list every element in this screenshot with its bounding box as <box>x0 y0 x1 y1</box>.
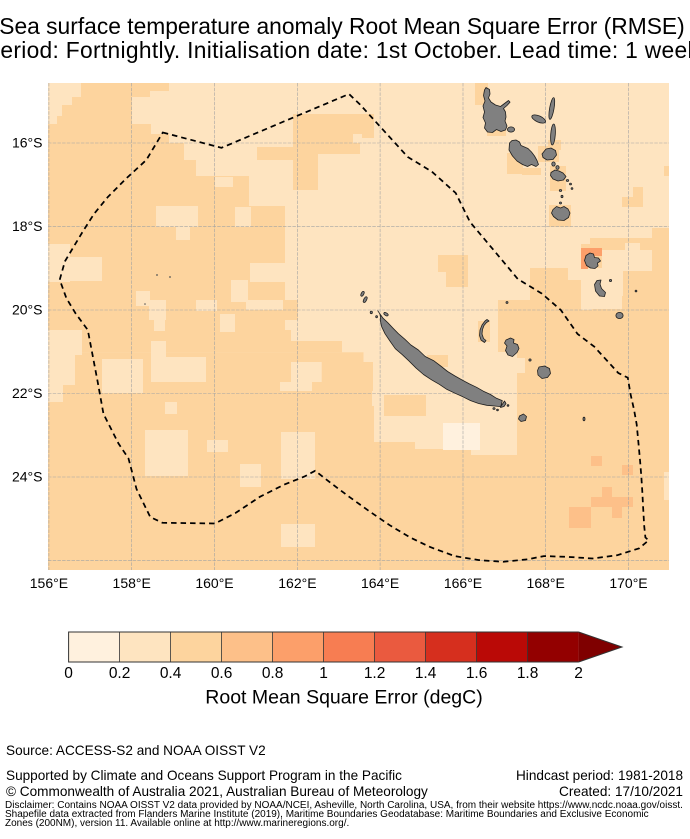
svg-text:160°E: 160°E <box>195 575 233 591</box>
svg-text:Root Mean Square Error (degC): Root Mean Square Error (degC) <box>205 687 482 709</box>
svg-text:1.8: 1.8 <box>517 665 539 682</box>
svg-text:2: 2 <box>574 665 583 682</box>
svg-text:0.4: 0.4 <box>160 665 182 682</box>
svg-text:168°E: 168°E <box>527 575 565 591</box>
svg-text:16°S: 16°S <box>12 135 43 151</box>
svg-text:20°S: 20°S <box>12 302 43 318</box>
svg-text:156°E: 156°E <box>30 575 68 591</box>
svg-text:0: 0 <box>64 665 73 682</box>
svg-text:170°E: 170°E <box>609 575 647 591</box>
svg-text:0.6: 0.6 <box>211 665 233 682</box>
svg-text:0.8: 0.8 <box>262 665 284 682</box>
svg-text:22°S: 22°S <box>12 385 43 401</box>
svg-text:1.6: 1.6 <box>466 665 488 682</box>
svg-text:162°E: 162°E <box>278 575 316 591</box>
svg-text:1: 1 <box>319 665 328 682</box>
svg-text:166°E: 166°E <box>444 575 482 591</box>
svg-text:18°S: 18°S <box>12 218 43 234</box>
svg-text:164°E: 164°E <box>361 575 399 591</box>
svg-text:158°E: 158°E <box>113 575 151 591</box>
svg-text:0.2: 0.2 <box>109 665 131 682</box>
svg-text:1.4: 1.4 <box>415 665 437 682</box>
svg-text:24°S: 24°S <box>12 469 43 485</box>
svg-text:1.2: 1.2 <box>364 665 386 682</box>
